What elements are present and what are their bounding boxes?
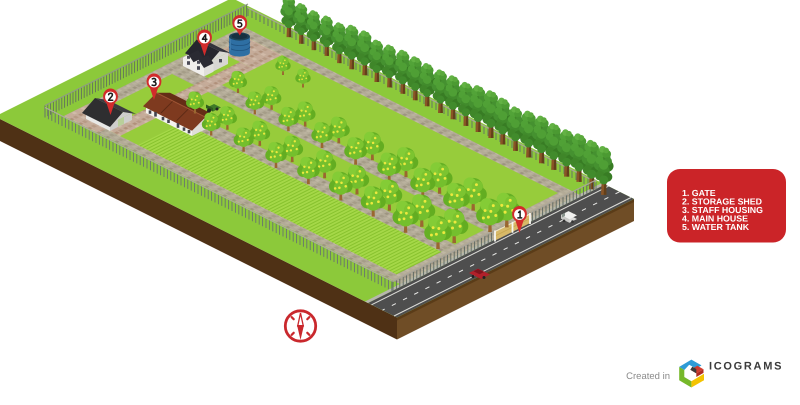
svg-text:Created in: Created in	[626, 371, 670, 382]
svg-text:ICOGRAMS: ICOGRAMS	[709, 361, 783, 373]
svg-text:5. WATER TANK: 5. WATER TANK	[682, 222, 750, 232]
